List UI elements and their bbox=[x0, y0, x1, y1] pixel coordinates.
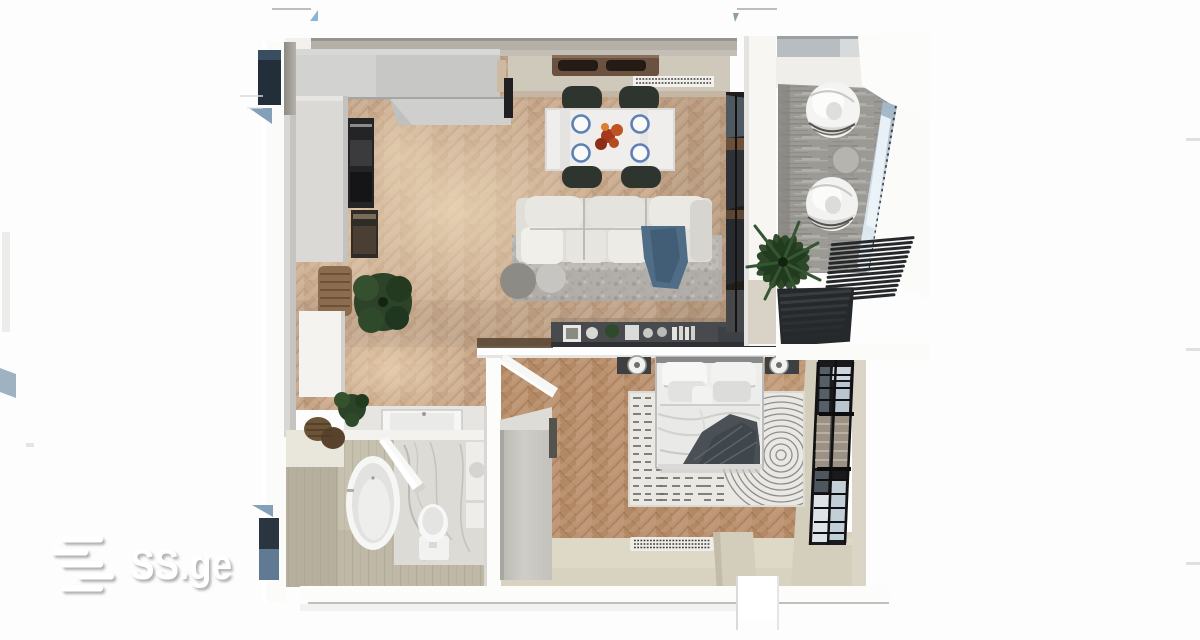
svg-text:SS.ge: SS.ge bbox=[130, 541, 232, 589]
